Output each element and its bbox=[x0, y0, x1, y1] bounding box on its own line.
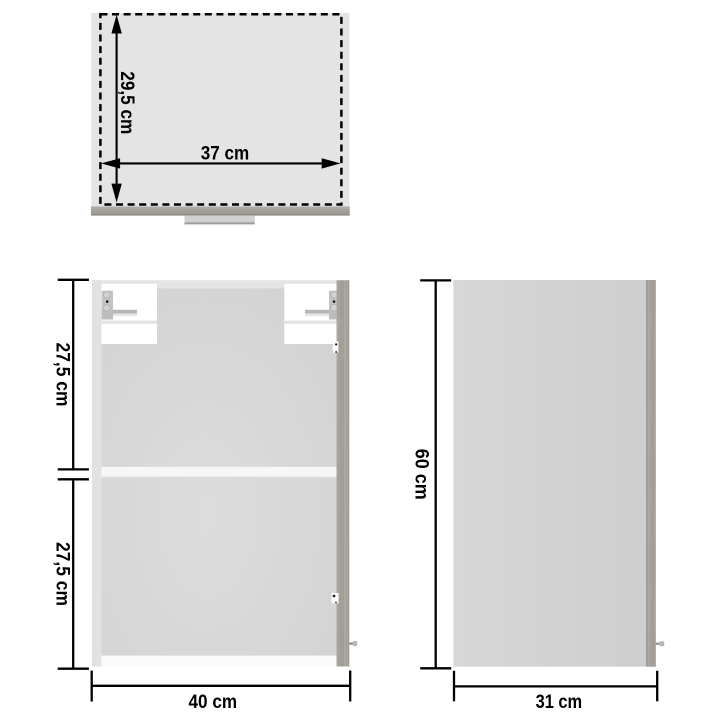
svg-text:27,5 cm: 27,5 cm bbox=[52, 343, 74, 407]
svg-text:40 cm: 40 cm bbox=[189, 691, 238, 713]
svg-text:27,5 cm: 27,5 cm bbox=[52, 542, 74, 606]
svg-text:60 cm: 60 cm bbox=[411, 449, 433, 500]
svg-text:37 cm: 37 cm bbox=[201, 143, 250, 165]
svg-text:31 cm: 31 cm bbox=[536, 691, 583, 713]
svg-text:29,5 cm: 29,5 cm bbox=[116, 71, 138, 134]
